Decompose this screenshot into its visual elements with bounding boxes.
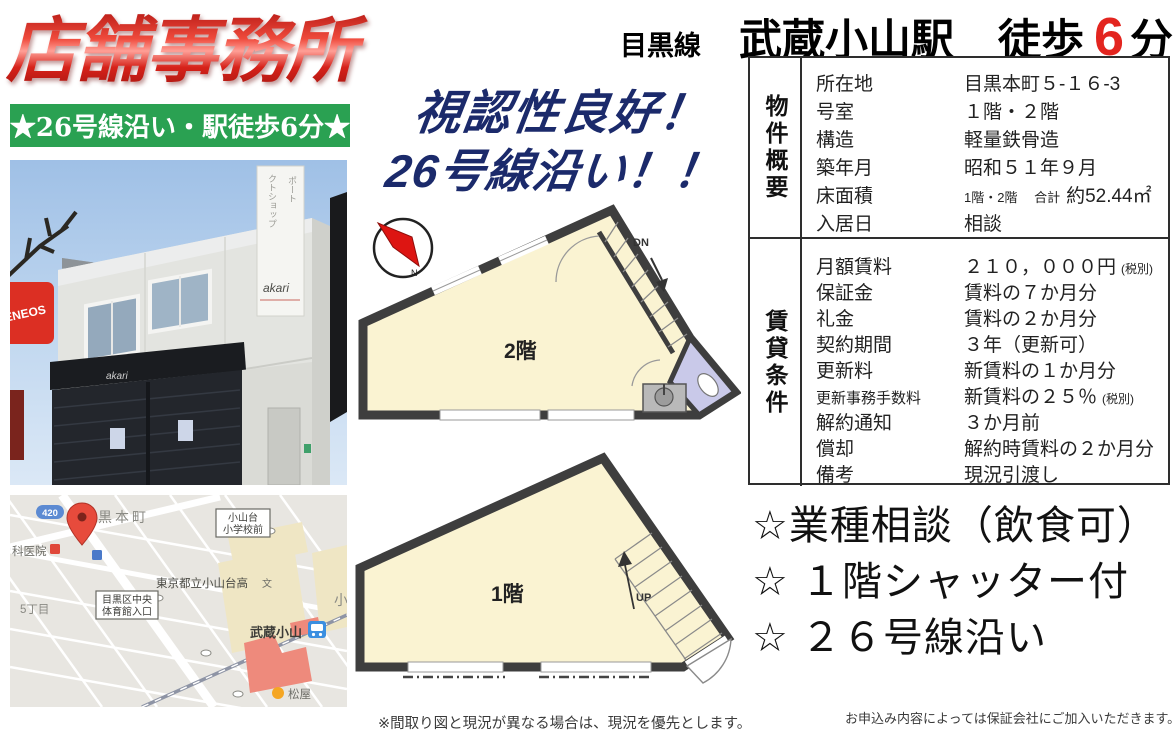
conditions-header-cell: 賃貸条件 — [750, 239, 802, 486]
catch-line-2: 26号線沿い！！ — [362, 142, 745, 200]
station-icon — [308, 621, 326, 638]
side-door — [268, 408, 300, 485]
table-row: 所在地目黒本町５-１６-3 — [816, 69, 1168, 97]
overview-header-cell: 物件概要 — [750, 58, 802, 237]
page-title: 店舗事務所 — [6, 0, 370, 102]
overview-header: 物件概要 — [758, 94, 792, 202]
awning-sign-text: akari — [106, 371, 128, 382]
floorplan-2f: DN 2階 N — [356, 196, 741, 428]
property-overview-section: 物件概要 所在地目黒本町５-１６-3 号室１階・２階 構造軽量鉄骨造 築年月昭和… — [750, 58, 1168, 239]
feature-list: ☆業種相談（飲食可） ☆ １階シャッター付 ☆ ２６号線沿い — [752, 498, 1172, 666]
conditions-header: 賃貸条件 — [758, 309, 792, 417]
building-photo-art: akari ポート クトショップ — [10, 160, 347, 485]
svg-text:体育館入口: 体育館入口 — [102, 605, 152, 618]
compass-icon: N — [374, 219, 432, 278]
vertical-signboard: ポート クトショップ akari — [257, 166, 304, 316]
catch-copy: 視認性良好！ 26号線沿い！！ — [362, 84, 753, 200]
svg-text:小学校前: 小学校前 — [223, 523, 263, 536]
small-station-icon — [92, 550, 102, 560]
catch-line-1: 視認性良好！ — [370, 84, 753, 142]
busstop-label-1: 小山台 小学校前 — [216, 509, 270, 537]
table-row: 入居日相談 — [816, 209, 1168, 237]
svg-text:ポート: ポート — [287, 176, 297, 203]
station-header: 目黒線 武蔵小山駅 徒歩 6 分 — [620, 6, 1174, 58]
table-row: 月額賃料２１０，０００円(税別) — [816, 252, 1168, 278]
feature-item: ☆業種相談（飲食可） — [752, 498, 1172, 554]
map-art: 420 黒本町 科医院 小山台 小学校前 東京都立小山台高 文 目黒区中央 体育… — [10, 495, 347, 707]
room-label-1f: 1階 — [491, 583, 524, 606]
map-label-district: 5丁目 — [20, 604, 49, 616]
board-sign-text: akari — [263, 281, 289, 295]
lease-conditions-section: 賃貸条件 月額賃料２１０，０００円(税別) 保証金賃料の７か月分 礼金賃料の２か… — [750, 239, 1168, 486]
school-mark: 文 — [262, 577, 272, 590]
svg-text:小山台: 小山台 — [228, 511, 258, 524]
floorplan-1f: UP 1階 — [353, 449, 738, 684]
building-photo: akari ポート クトショップ — [10, 160, 347, 485]
busstop-label-2: 目黒区中央 体育館入口 — [96, 591, 158, 619]
matsuya-icon — [272, 687, 284, 699]
feature-item: ☆ １階シャッター付 — [752, 554, 1172, 610]
banner-road-access: ★26号線沿い・駅徒歩6分★ — [10, 104, 350, 147]
svg-text:DN: DN — [633, 237, 649, 249]
map-label-school: 東京都立小山台高 — [156, 576, 248, 590]
feature-item: ☆ ２６号線沿い — [752, 610, 1172, 666]
table-row: 償却解約時賃料の２か月分 — [816, 434, 1168, 460]
map-label-matsuya: 松屋 — [288, 687, 311, 701]
svg-text:目黒区中央: 目黒区中央 — [102, 593, 152, 606]
map-label-hospital: 科医院 — [12, 544, 47, 558]
rail-line-name: 目黒線 — [620, 24, 701, 63]
table-row: 保証金賃料の７か月分 — [816, 278, 1168, 304]
svg-text:420: 420 — [42, 508, 58, 519]
room-label-2f: 2階 — [504, 340, 537, 363]
conditions-body: 月額賃料２１０，０００円(税別) 保証金賃料の７か月分 礼金賃料の２か月分 契約… — [802, 239, 1168, 486]
svg-text:UP: UP — [636, 592, 651, 604]
table-row: 更新事務手数料新賃料の２５％(税別) — [816, 382, 1168, 408]
flyer-page: 店舗事務所 ★26号線沿い・駅徒歩6分★ 視認性良好！ 26号線沿い！！ 目黒線… — [0, 0, 1174, 731]
table-row: 更新料新賃料の１か月分 — [816, 356, 1168, 382]
table-row: 解約通知３か月前 — [816, 408, 1168, 434]
location-map: 420 黒本町 科医院 小山台 小学校前 東京都立小山台高 文 目黒区中央 体育… — [10, 495, 347, 707]
svg-text:クトショップ: クトショップ — [267, 174, 277, 228]
overview-body: 所在地目黒本町５-１６-3 号室１階・２階 構造軽量鉄骨造 築年月昭和５１年９月… — [802, 58, 1168, 237]
adjacent-dark-building — [330, 192, 347, 422]
property-table: 物件概要 所在地目黒本町５-１６-3 号室１階・２階 構造軽量鉄骨造 築年月昭和… — [748, 56, 1170, 485]
table-row: 契約期間３年（更新可） — [816, 330, 1168, 356]
sink-unit — [643, 384, 686, 412]
table-row: 号室１階・２階 — [816, 97, 1168, 125]
floorplan-disclaimer: ※間取り図と現況が異なる場合は、現況を優先とします。 — [378, 712, 751, 731]
table-row: 備考現況引渡し — [816, 460, 1168, 486]
eneos-sign: ENEOS — [10, 282, 54, 460]
poster — [110, 428, 125, 449]
guarantor-note: お申込み内容によっては保証会社にご加入いただきます。 — [845, 708, 1174, 727]
table-row: 床面積1階・2階 合計約52.44㎡ — [816, 181, 1168, 209]
svg-text:N: N — [411, 268, 418, 278]
table-row: 築年月昭和５１年９月 — [816, 153, 1168, 181]
table-row: 構造軽量鉄骨造 — [816, 125, 1168, 153]
map-label-partial: 小 — [334, 592, 347, 608]
poster — [178, 420, 193, 441]
map-label-town: 黒本町 — [98, 509, 149, 525]
table-row: 礼金賃料の２か月分 — [816, 304, 1168, 330]
subject-building: akari ポート クトショップ — [50, 166, 347, 485]
map-label-station: 武蔵小山 — [250, 625, 302, 640]
hospital-icon — [50, 544, 60, 554]
